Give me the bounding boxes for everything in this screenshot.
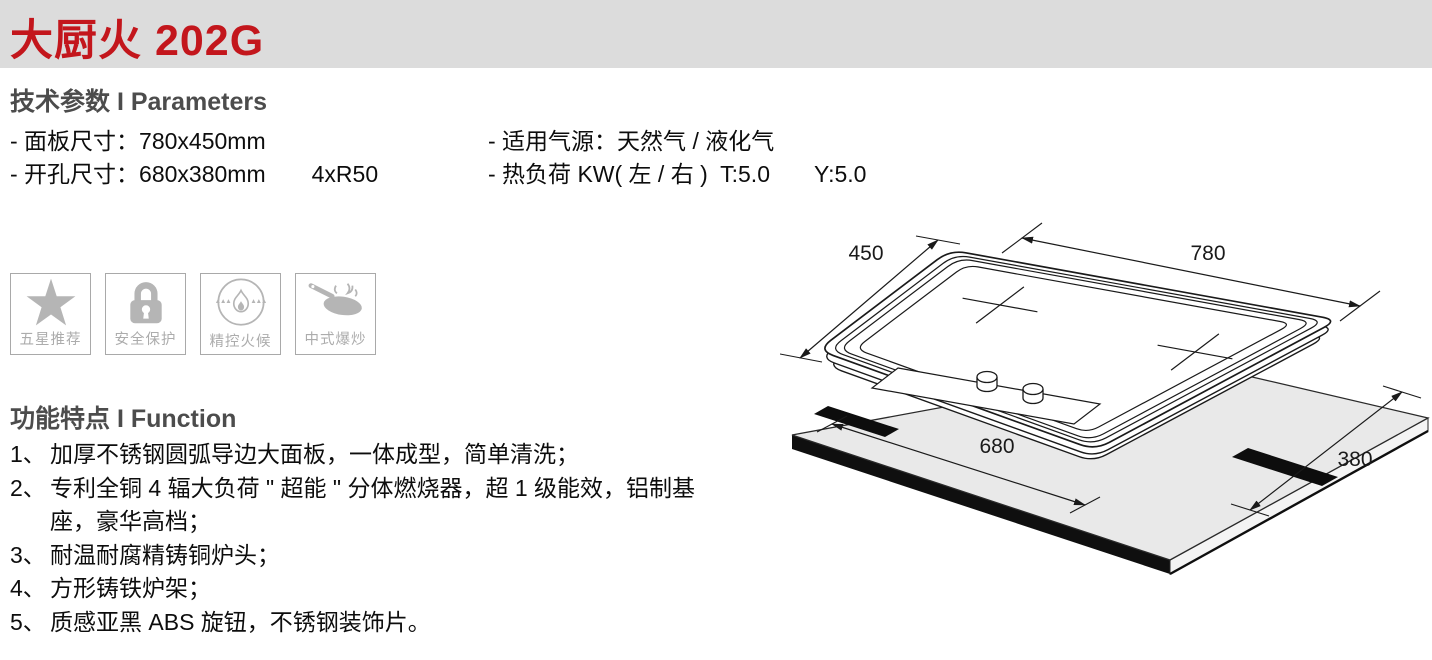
- flame-circle-icon: [213, 276, 269, 330]
- param-heat-load-left: - 热负荷 KW( 左 / 右 ) T:5.0: [488, 161, 770, 187]
- function-list: 1、加厚不锈钢圆弧导边大面板，一体成型，简单清洗； 2、专利全铜 4 辐大负荷 …: [10, 438, 736, 639]
- badge-label: 安全保护: [115, 328, 177, 349]
- list-item: 3、耐温耐腐精铸铜炉头；: [10, 539, 736, 573]
- knob: [977, 372, 997, 392]
- dim-label-cutout-depth: 380: [1337, 448, 1372, 471]
- badge-label: 五星推荐: [20, 328, 82, 349]
- param-cutout-size: - 开孔尺寸：680x380mm4xR50: [10, 155, 378, 189]
- param-gas-source: - 适用气源：天然气 / 液化气: [488, 122, 774, 156]
- page-title: 大厨火 202G: [10, 6, 264, 68]
- param-corner-radius: 4xR50: [312, 161, 378, 187]
- wok-icon: [306, 276, 366, 328]
- badge-label: 中式爆炒: [305, 328, 367, 349]
- title-bar: 大厨火 202G: [0, 0, 1432, 68]
- param-panel-size: - 面板尺寸：780x450mm: [10, 122, 266, 156]
- dim-label-cutout-width: 680: [979, 435, 1014, 458]
- list-item: 5、质感亚黑 ABS 旋钮，不锈钢装饰片。: [10, 606, 736, 640]
- installation-diagram: 780 450 680 380: [780, 210, 1432, 660]
- badge-five-star: 五星推荐: [10, 273, 91, 355]
- dim-label-depth: 450: [848, 242, 883, 265]
- badge-stir-fry: 中式爆炒: [295, 273, 376, 355]
- param-heat-load-right: Y:5.0: [814, 161, 866, 187]
- lock-icon: [122, 276, 170, 328]
- feature-badges: 五星推荐 安全保护 精控火候: [10, 273, 376, 355]
- function-heading: 功能特点 I Function: [10, 399, 236, 435]
- list-item: 4、方形铸铁炉架；: [10, 572, 736, 606]
- badge-label: 精控火候: [210, 330, 272, 351]
- parameters-heading: 技术参数 I Parameters: [10, 82, 267, 118]
- badge-safety: 安全保护: [105, 273, 186, 355]
- dim-label-width: 780: [1190, 242, 1225, 265]
- list-item: 2、专利全铜 4 辐大负荷 " 超能 " 分体燃烧器，超 1 级能效，铝制基座，…: [10, 472, 736, 539]
- badge-flame-control: 精控火候: [200, 273, 281, 355]
- param-cutout-value: - 开孔尺寸：680x380mm: [10, 161, 266, 187]
- star-icon: [24, 276, 78, 328]
- list-item: 1、加厚不锈钢圆弧导边大面板，一体成型，简单清洗；: [10, 438, 736, 472]
- knob: [1023, 384, 1043, 404]
- param-heat-load: - 热负荷 KW( 左 / 右 ) T:5.0Y:5.0: [488, 155, 866, 189]
